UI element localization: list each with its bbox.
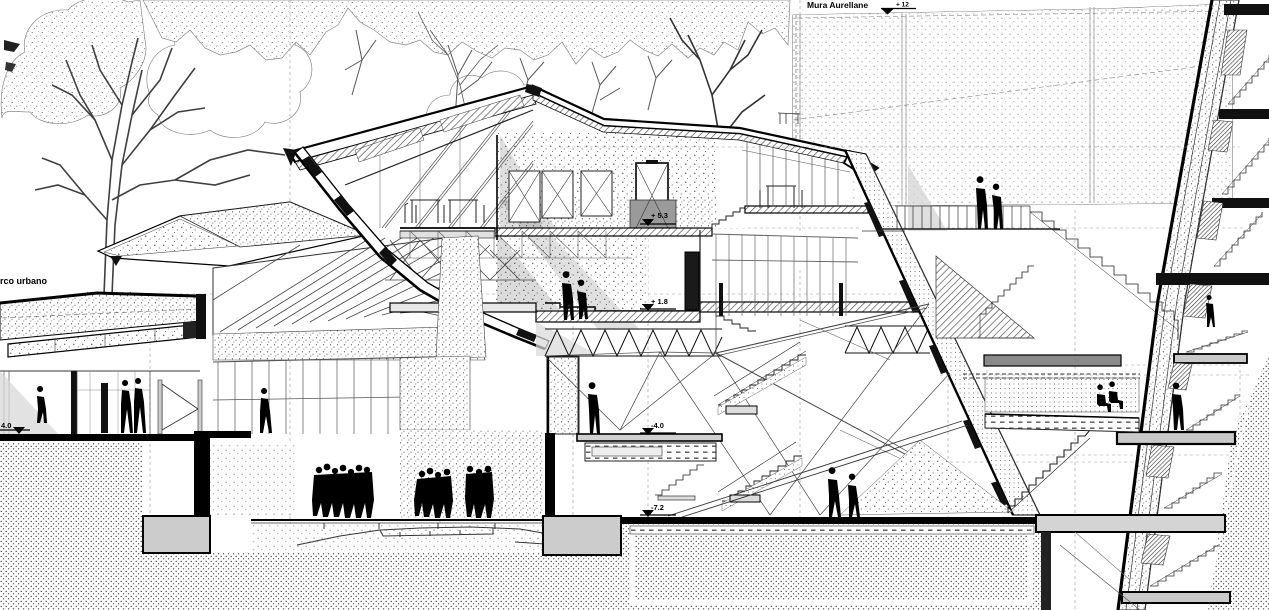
svg-text:Mura Aurellane: Mura Aurellane bbox=[807, 0, 868, 10]
svg-text:rco urbano: rco urbano bbox=[0, 276, 48, 286]
svg-text:+ 1.8: + 1.8 bbox=[651, 297, 668, 306]
svg-text:+ 12: + 12 bbox=[896, 2, 909, 9]
svg-text:+ 5.3: + 5.3 bbox=[651, 211, 668, 220]
svg-text:4.0: 4.0 bbox=[1, 421, 11, 430]
